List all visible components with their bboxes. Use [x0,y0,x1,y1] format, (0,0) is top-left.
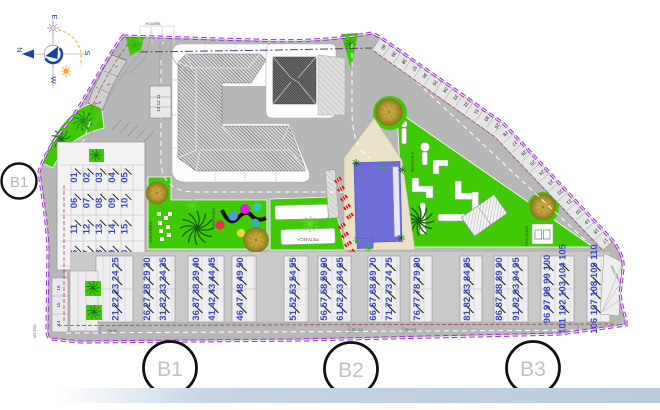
svg-text:Pb 174: Pb 174 [352,328,363,332]
svg-text:04: 04 [107,172,118,183]
svg-text:12: 12 [82,224,93,235]
svg-text:B2: B2 [338,359,364,382]
svg-text:15: 15 [56,302,61,308]
svg-text:Pb 174: Pb 174 [405,328,416,332]
svg-text:76 77 78 79 80: 76 77 78 79 80 [412,257,423,320]
svg-text:N: N [15,47,24,52]
svg-text:05: 05 [119,172,130,183]
svg-text:106 107 108 109 110: 106 107 108 109 110 [589,244,600,333]
svg-text:56 57 58 59 60: 56 57 58 59 60 [319,257,330,320]
svg-text:09: 09 [107,198,118,209]
svg-text:41 42 43 44 45: 41 42 43 44 45 [207,257,218,321]
svg-text:21 22 23 24 25: 21 22 23 24 25 [111,257,122,321]
svg-text:ACCESO: ACCESO [33,324,37,338]
svg-text:14: 14 [107,223,118,234]
svg-text:16: 16 [56,285,61,291]
svg-text:B1: B1 [10,174,28,191]
svg-text:15: 15 [119,223,130,234]
svg-text:46 47 48 49 50: 46 47 48 49 50 [235,257,246,320]
svg-text:07: 07 [82,198,93,209]
svg-text:06: 06 [69,198,80,209]
svg-text:W: W [49,76,58,84]
svg-text:B3: B3 [520,358,546,381]
svg-text:13: 13 [94,224,105,235]
svg-text:E: E [50,14,59,19]
svg-text:MINIGOLF: MINIGOLF [410,151,415,172]
svg-text:14: 14 [56,320,61,326]
svg-text:13 12 11: 13 12 11 [156,94,161,112]
svg-text:GIMNASIA: GIMNASIA [211,208,216,229]
svg-text:26 27 28 29 30: 26 27 28 29 30 [142,257,153,320]
svg-text:S: S [83,50,92,55]
svg-text:Pa 65: Pa 65 [108,329,117,333]
svg-text:03: 03 [94,172,105,183]
svg-text:66 67 68 69 70: 66 67 68 69 70 [368,257,379,320]
svg-text:08: 08 [94,198,105,209]
svg-text:PING-PONG: PING-PONG [525,226,529,247]
svg-text:86 87 88 89 90: 86 87 88 89 90 [494,257,505,320]
svg-text:71 72 73 74 75: 71 72 73 74 75 [384,257,395,321]
svg-text:31 32 33 34 35: 31 32 33 34 35 [158,257,169,321]
svg-text:61 62 63 64 65: 61 62 63 64 65 [335,257,346,321]
svg-text:91 92 93 94 95: 91 92 93 94 95 [511,257,522,321]
svg-text:CHILDREN: CHILDREN [148,221,153,242]
svg-text:PETANCA: PETANCA [296,237,318,242]
svg-text:51 52 53 54 55: 51 52 53 54 55 [288,257,299,321]
svg-text:96 97 98 99 100: 96 97 98 99 100 [542,255,553,324]
svg-text:101 102 103 104 105: 101 102 103 104 105 [558,243,569,334]
svg-text:11: 11 [69,223,80,234]
svg-text:10: 10 [119,198,130,209]
svg-text:81 82 83 84 85: 81 82 83 84 85 [462,257,473,321]
svg-text:02: 02 [82,172,93,183]
svg-text:B1: B1 [157,358,183,381]
svg-text:36 37 38 39 40: 36 37 38 39 40 [191,257,202,320]
svg-text:01: 01 [69,172,80,183]
